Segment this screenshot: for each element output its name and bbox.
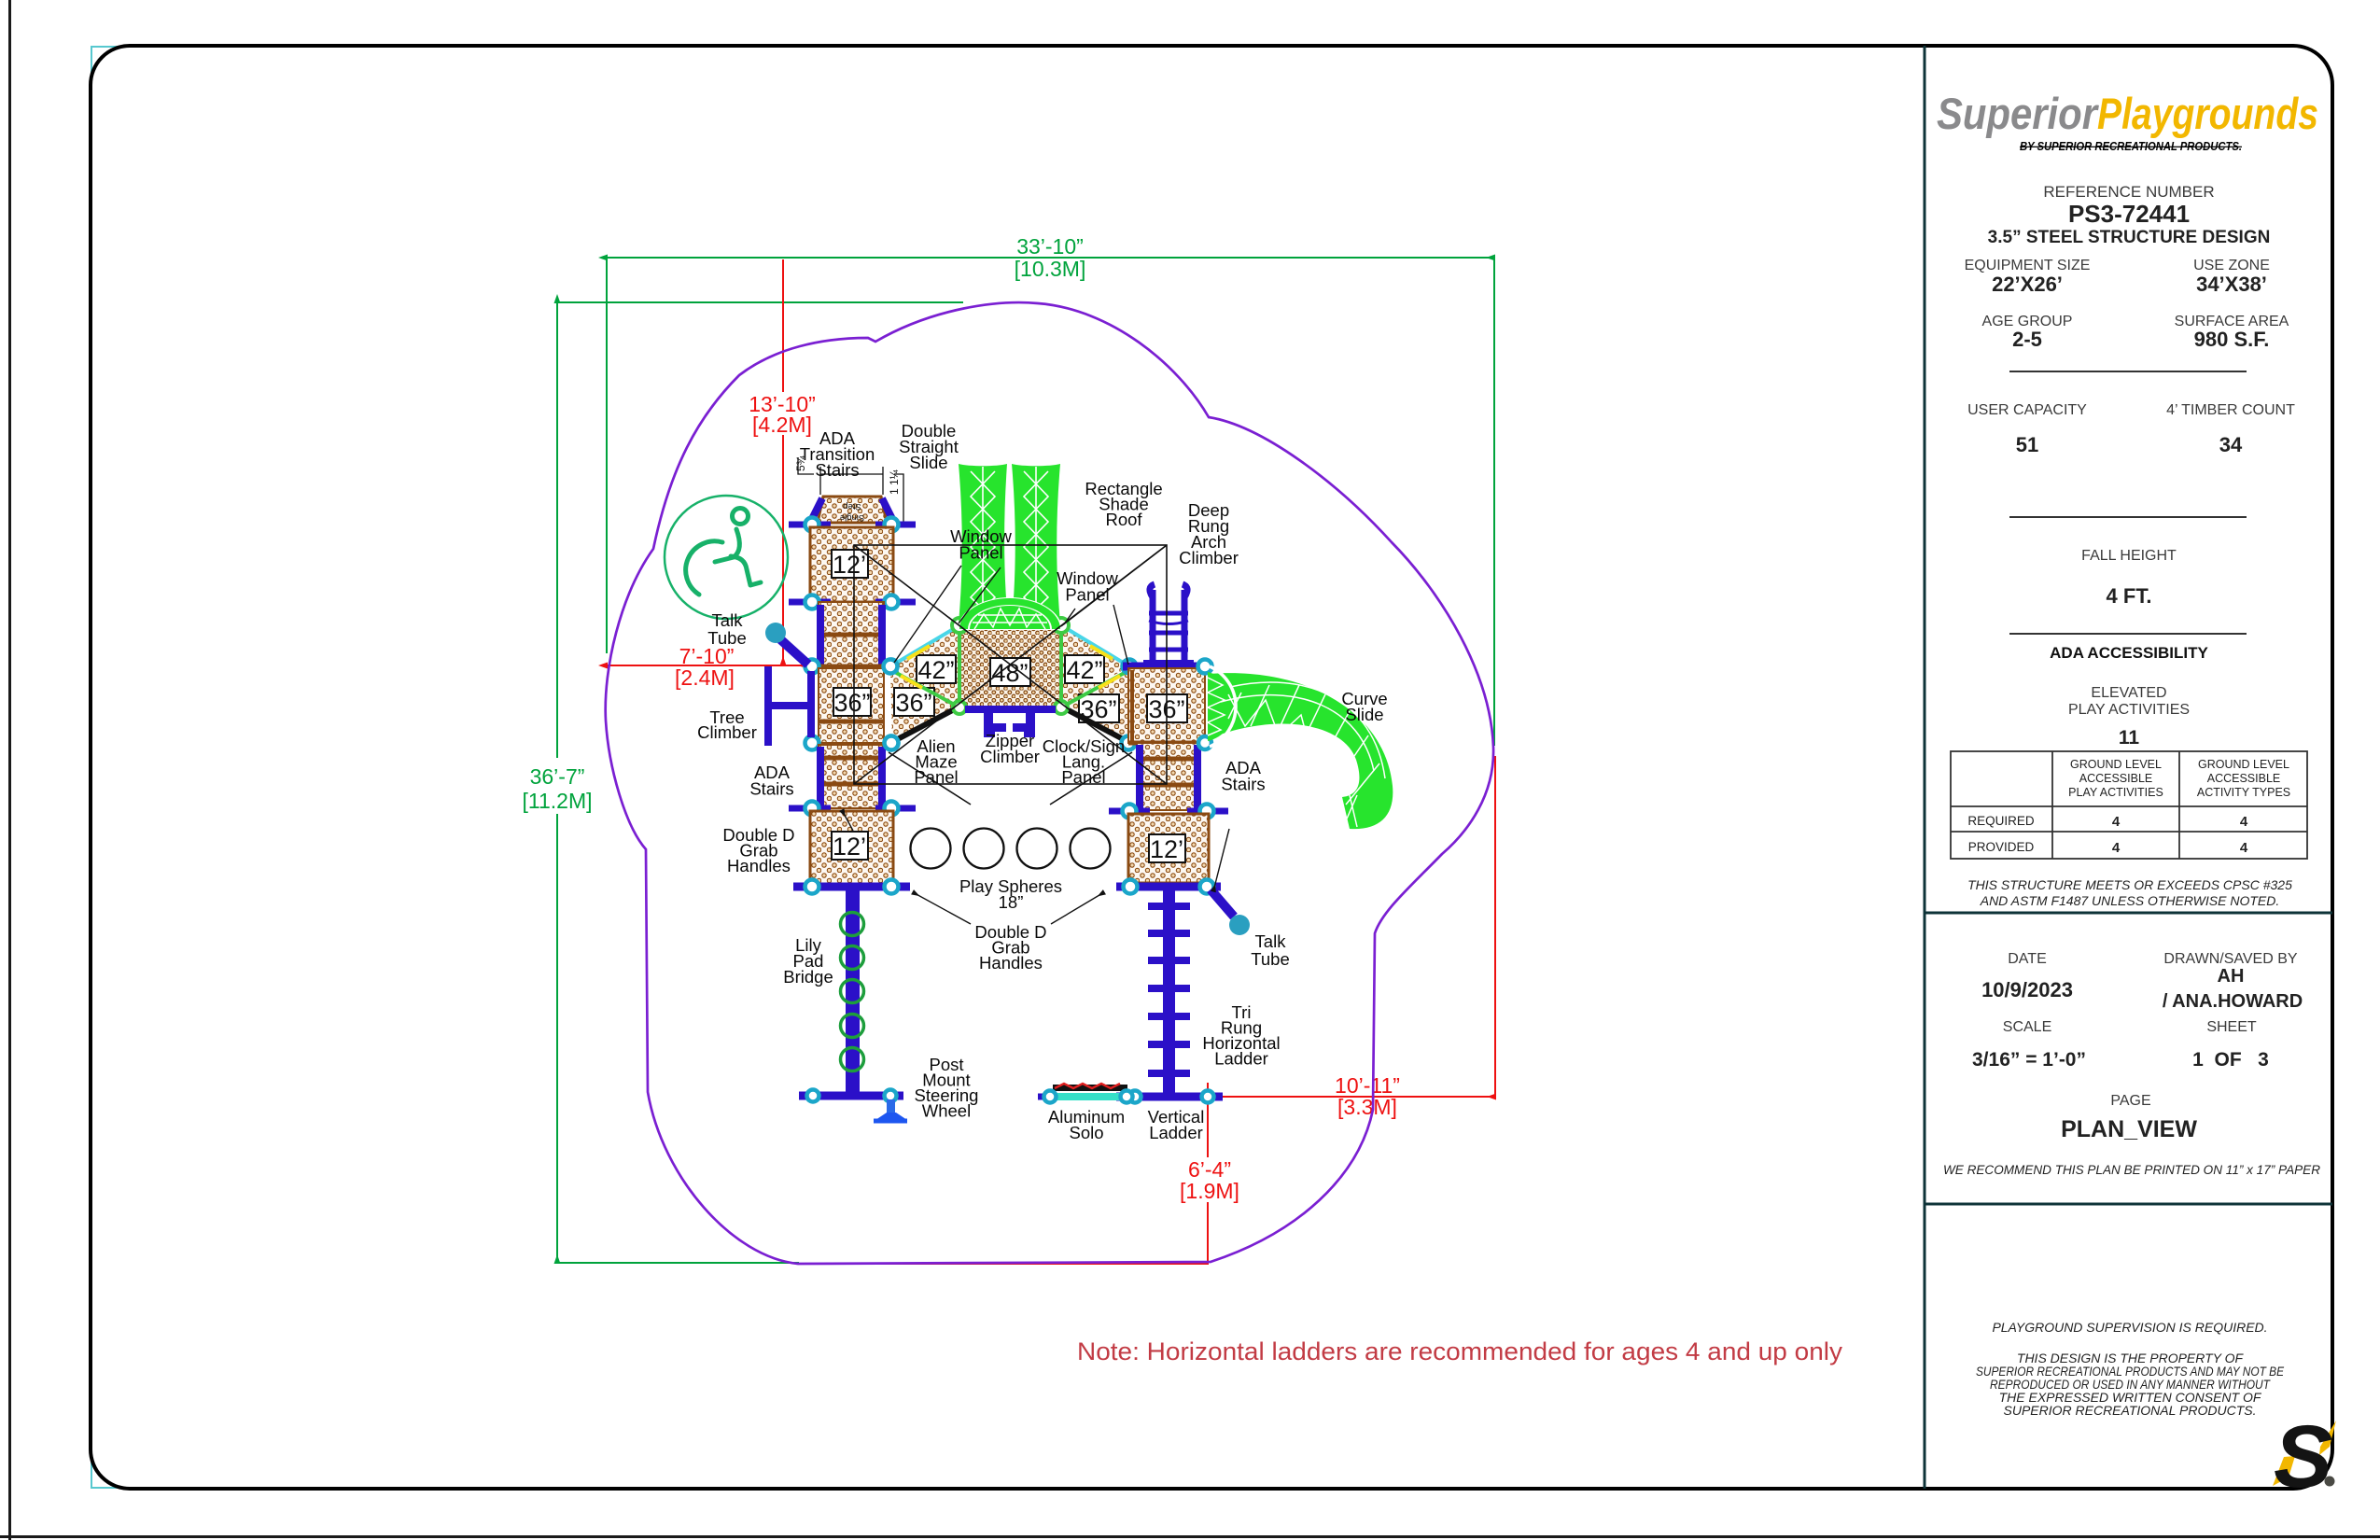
svg-text:4: 4 [2240,840,2248,856]
svg-text:Tube: Tube [707,628,746,648]
svg-text:/ ANA.HOWARD: / ANA.HOWARD [2163,991,2303,1012]
svg-text:ACCESSIBLE: ACCESSIBLE [2079,772,2153,785]
svg-text:12’: 12’ [833,551,866,579]
svg-text:GROUND LEVEL: GROUND LEVEL [2198,758,2289,771]
svg-text:980 S.F.: 980 S.F. [2194,328,2270,351]
svg-text:REFERENCE NUMBER: REFERENCE NUMBER [2043,183,2214,201]
svg-text:THIS STRUCTURE MEETS OR EXCEED: THIS STRUCTURE MEETS OR EXCEEDS CPSC #32… [1967,877,2292,892]
svg-text:Stairs: Stairs [749,779,793,799]
svg-text:WE RECOMMEND THIS PLAN BE PRIN: WE RECOMMEND THIS PLAN BE PRINTED ON 11”… [1943,1163,2320,1177]
svg-text:Solo: Solo [1069,1123,1103,1142]
svg-text:Panel: Panel [1061,767,1105,787]
svg-text:Panel: Panel [914,767,958,787]
svg-text:Stairs: Stairs [1221,775,1265,794]
svg-text:4: 4 [2112,840,2121,856]
svg-text:3.5” STEEL STRUCTURE DESIGN: 3.5” STEEL STRUCTURE DESIGN [1988,228,2271,247]
svg-text:SCALE: SCALE [2003,1019,2051,1035]
svg-text:Panel: Panel [959,543,1002,563]
svg-text:12’: 12’ [1150,835,1183,863]
svg-text:12’: 12’ [833,833,866,861]
svg-text:34: 34 [2219,433,2243,456]
svg-text:Talk: Talk [1255,931,1287,951]
svg-text:FALL HEIGHT: FALL HEIGHT [2081,548,2177,564]
svg-text:Roof: Roof [1105,510,1142,529]
svg-text:ACCESSIBLE: ACCESSIBLE [2207,772,2281,785]
svg-text:3/16” = 1’-0”: 3/16” = 1’-0” [1972,1049,2086,1071]
svg-text:4’ TIMBER COUNT: 4’ TIMBER COUNT [2166,402,2295,418]
svg-text:Stairs: Stairs [815,460,859,480]
svg-text:Slide: Slide [909,453,947,472]
svg-text:BY SUPERIOR RECREATIONAL PRODU: BY SUPERIOR RECREATIONAL PRODUCTS. [2020,140,2242,153]
svg-text:Climber: Climber [980,747,1040,766]
svg-text:4: 4 [2112,814,2121,830]
svg-text:11: 11 [2119,727,2140,749]
svg-text:Panel: Panel [1065,585,1109,605]
svg-text:DRAWN/SAVED BY: DRAWN/SAVED BY [2163,951,2297,967]
svg-text:Handles: Handles [727,856,791,875]
svg-text:PLAY ACTIVITIES: PLAY ACTIVITIES [2068,786,2163,799]
svg-text:PLAY ACTIVITIES: PLAY ACTIVITIES [2068,702,2190,718]
svg-text:Slide: Slide [1345,705,1383,724]
svg-text:PAGE: PAGE [2110,1093,2150,1109]
svg-text:36’-7”: 36’-7” [530,764,585,789]
svg-text:1 OF 3: 1 OF 3 [2192,1049,2269,1071]
svg-text:PLAYGROUND SUPERVISION IS REQU: PLAYGROUND SUPERVISION IS REQUIRED. [1992,1320,2267,1335]
svg-text:Climber: Climber [697,722,757,742]
svg-text:[2.4M]: [2.4M] [675,665,735,690]
svg-text:42”: 42” [1066,656,1102,684]
svg-text:ACTIVITY TYPES: ACTIVITY TYPES [2197,786,2290,799]
svg-text:SUPERIOR RECREATIONAL PRODUCTS: SUPERIOR RECREATIONAL PRODUCTS. [2004,1403,2257,1418]
svg-text:4: 4 [2240,814,2248,830]
svg-text:USER CAPACITY: USER CAPACITY [1967,402,2087,418]
svg-text:Superior: Superior [1937,89,2099,138]
svg-text:[3.3M]: [3.3M] [1337,1095,1397,1119]
svg-text:Tube: Tube [1251,949,1289,969]
svg-text:ADA ACCESSIBILITY: ADA ACCESSIBILITY [2050,644,2208,662]
svg-text:PLAN_VIEW: PLAN_VIEW [2061,1116,2197,1142]
svg-text:34’X38’: 34’X38’ [2196,273,2267,296]
svg-text:REQUIRED: REQUIRED [1967,814,2035,828]
svg-text:USE ZONE: USE ZONE [2193,258,2270,273]
svg-text:Bridge: Bridge [783,967,833,987]
svg-text:DATE: DATE [2008,951,2046,967]
svg-text:Step: Step [843,501,861,511]
svg-text:18”: 18” [999,892,1024,912]
svg-text:Wheel: Wheel [922,1101,971,1121]
svg-text:SHEET: SHEET [2206,1019,2257,1035]
svg-text:EQUIPMENT SIZE: EQUIPMENT SIZE [1965,258,2091,273]
svg-text:2-5: 2-5 [2012,328,2042,351]
svg-text:51: 51 [2016,433,2038,456]
svg-text:Ladder: Ladder [1149,1123,1203,1142]
svg-text:Climber: Climber [1179,548,1239,567]
svg-text:Talk: Talk [712,610,744,630]
svg-text:Single: Single [840,512,864,523]
svg-text:[10.3M]: [10.3M] [1015,257,1086,281]
svg-text:ELEVATED: ELEVATED [2091,685,2166,701]
svg-text:[1.9M]: [1.9M] [1180,1179,1239,1203]
svg-text:1 1¼: 1 1¼ [888,469,901,495]
svg-text:Playgrounds: Playgrounds [2097,89,2318,138]
svg-text:33’-10”: 33’-10” [1016,234,1084,259]
svg-text:Note: Horizontal ladders are r: Note: Horizontal ladders are recommended… [1077,1337,1843,1365]
svg-text:Ladder: Ladder [1214,1049,1268,1069]
svg-text:36”: 36” [895,689,931,717]
svg-text:10/9/2023: 10/9/2023 [1981,978,2073,1001]
svg-text:AND ASTM F1487 UNLESS OTHERWIS: AND ASTM F1487 UNLESS OTHERWISE NOTED. [1980,893,2280,908]
svg-text:4 FT.: 4 FT. [2107,584,2152,608]
svg-text:PS3-72441: PS3-72441 [2068,200,2190,228]
svg-text:Handles: Handles [979,953,1043,973]
svg-text:[11.2M]: [11.2M] [523,789,593,813]
svg-text:42”: 42” [917,656,954,684]
svg-text:PROVIDED: PROVIDED [1968,840,2035,854]
svg-text:22’X26’: 22’X26’ [1992,273,2063,296]
svg-text:36”: 36” [833,689,870,717]
svg-text:S: S [2274,1407,2332,1506]
svg-text:AH: AH [2218,966,2245,987]
svg-text:[4.2M]: [4.2M] [752,413,812,437]
svg-text:48”: 48” [991,659,1028,687]
svg-text:GROUND LEVEL: GROUND LEVEL [2070,758,2162,771]
